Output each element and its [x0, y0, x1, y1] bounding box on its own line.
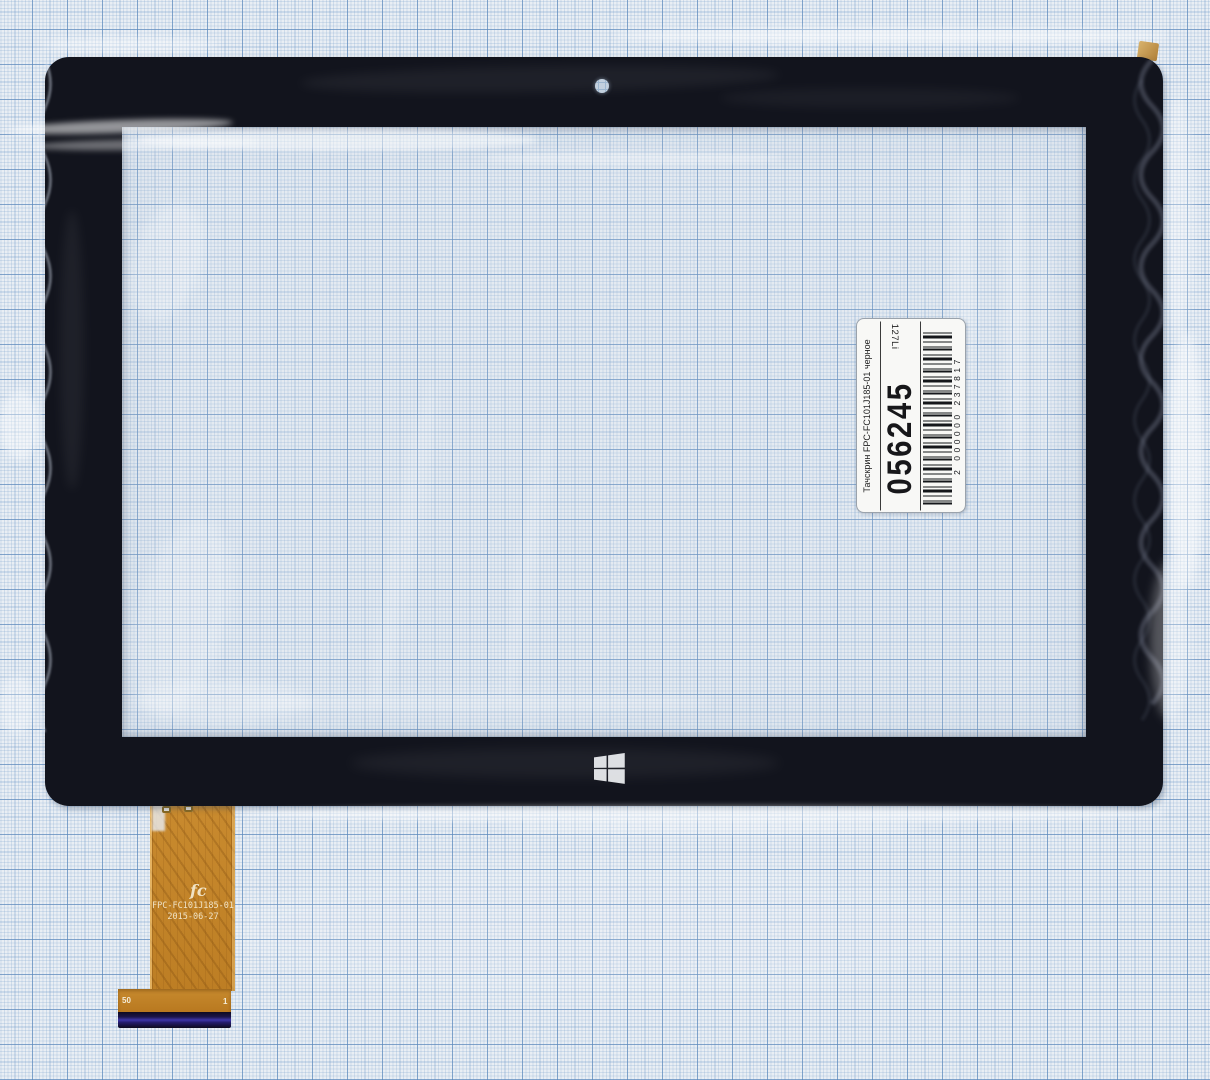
wrap-highlight — [242, 692, 712, 714]
sticker-label: Тачскрин FPC-FC101J185-01 черное 056245 … — [856, 318, 966, 513]
pin-number-last: 1 — [223, 997, 227, 1006]
cable-connector-contacts — [118, 1012, 231, 1028]
wrap-highlight — [482, 152, 782, 165]
sticker-number: 056245 — [881, 381, 920, 494]
wrap-highlight — [122, 509, 250, 725]
barcode-icon — [923, 328, 952, 504]
manufacturer-logo: fc — [190, 881, 207, 900]
barcode-digits: 2 000000 237817 — [952, 326, 962, 504]
wrap-highlight — [495, 427, 559, 707]
cable-alignment-hole — [162, 806, 171, 813]
wrap-highlight — [137, 129, 537, 151]
flex-cable: fc FPC-FC101J185-01 2015-06-27 50 1 — [118, 795, 235, 1030]
wrap-highlight — [122, 194, 219, 330]
wrap-highlight — [1006, 182, 1026, 482]
sticker-content: Тачскрин FPC-FC101J185-01 черное 056245 … — [857, 319, 965, 512]
cable-alignment-hole — [184, 805, 193, 812]
product-photo: fc FPC-FC101J185-01 2015-06-27 50 1 — [0, 0, 1210, 1080]
cable-model-text: FPC-FC101J185-01 — [152, 901, 234, 911]
sticker-side-code: 127Li — [889, 323, 900, 349]
sticker-title: Тачскрин FPC-FC101J185-01 черное — [862, 322, 872, 509]
cable-date-text: 2015-06-27 — [152, 912, 234, 922]
wrap-highlight — [1037, 222, 1053, 482]
pin-number-first: 50 — [122, 996, 131, 1005]
wrap-highlight — [132, 682, 312, 722]
cable-connector-foot — [118, 989, 231, 1013]
wrap-highlight — [364, 377, 447, 707]
windows-logo-icon — [593, 753, 626, 784]
sticker-divider — [920, 321, 921, 510]
camera-hole-icon — [595, 79, 609, 93]
